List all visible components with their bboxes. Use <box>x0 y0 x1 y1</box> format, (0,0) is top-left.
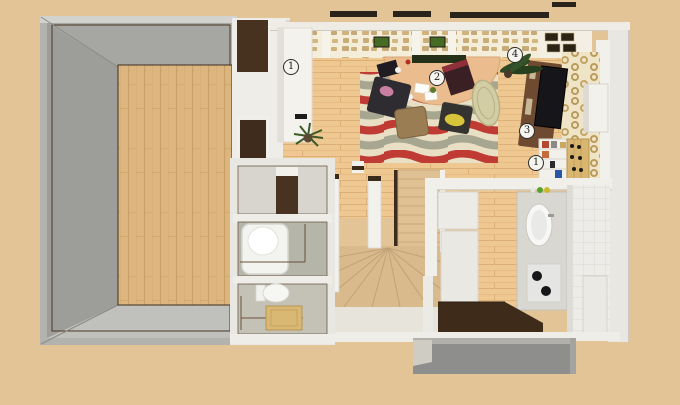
bookshelf <box>539 139 569 179</box>
toilet <box>256 284 289 302</box>
marker-label: 2 <box>434 73 440 83</box>
yellow-bottle <box>544 187 550 193</box>
wall-shelf-items <box>412 55 466 63</box>
faucet <box>548 214 554 217</box>
marker-bookshelf: 1 <box>528 155 544 171</box>
marker-wall-decor: 4 <box>507 47 523 63</box>
window-bar <box>393 11 431 17</box>
entry-cabinet <box>583 276 607 333</box>
window-bar <box>450 12 549 18</box>
top-wall <box>270 2 630 31</box>
stove <box>527 264 561 302</box>
wallpaper-frieze <box>285 31 592 58</box>
kitchen-cabinet-white <box>438 192 478 229</box>
closet-door-dark <box>237 20 268 72</box>
window-bar <box>330 11 377 17</box>
left-room <box>40 16 237 345</box>
bathroom-block <box>230 158 335 345</box>
floorplan-3d-render: 1 2 4 3 1 <box>0 0 680 405</box>
marker-wardrobe: 1 <box>283 59 299 75</box>
chair-brown <box>394 106 429 139</box>
marker-label: 4 <box>512 50 518 60</box>
utility-cabinet <box>276 176 298 214</box>
left-room-wood-floor <box>118 65 232 305</box>
marker-dining-table: 2 <box>429 70 445 86</box>
green-picture <box>374 37 389 47</box>
marker-label: 1 <box>533 158 539 168</box>
green-picture <box>430 37 445 47</box>
marker-tv-stand: 3 <box>519 123 535 139</box>
green-bottle <box>537 187 543 193</box>
marker-label: 3 <box>524 126 530 136</box>
floorplan-scene <box>0 0 680 405</box>
window-bar <box>552 2 576 7</box>
entry-porch <box>413 338 576 374</box>
marker-label: 1 <box>288 62 294 72</box>
bottle-rack <box>567 139 589 179</box>
wardrobe <box>278 28 312 142</box>
